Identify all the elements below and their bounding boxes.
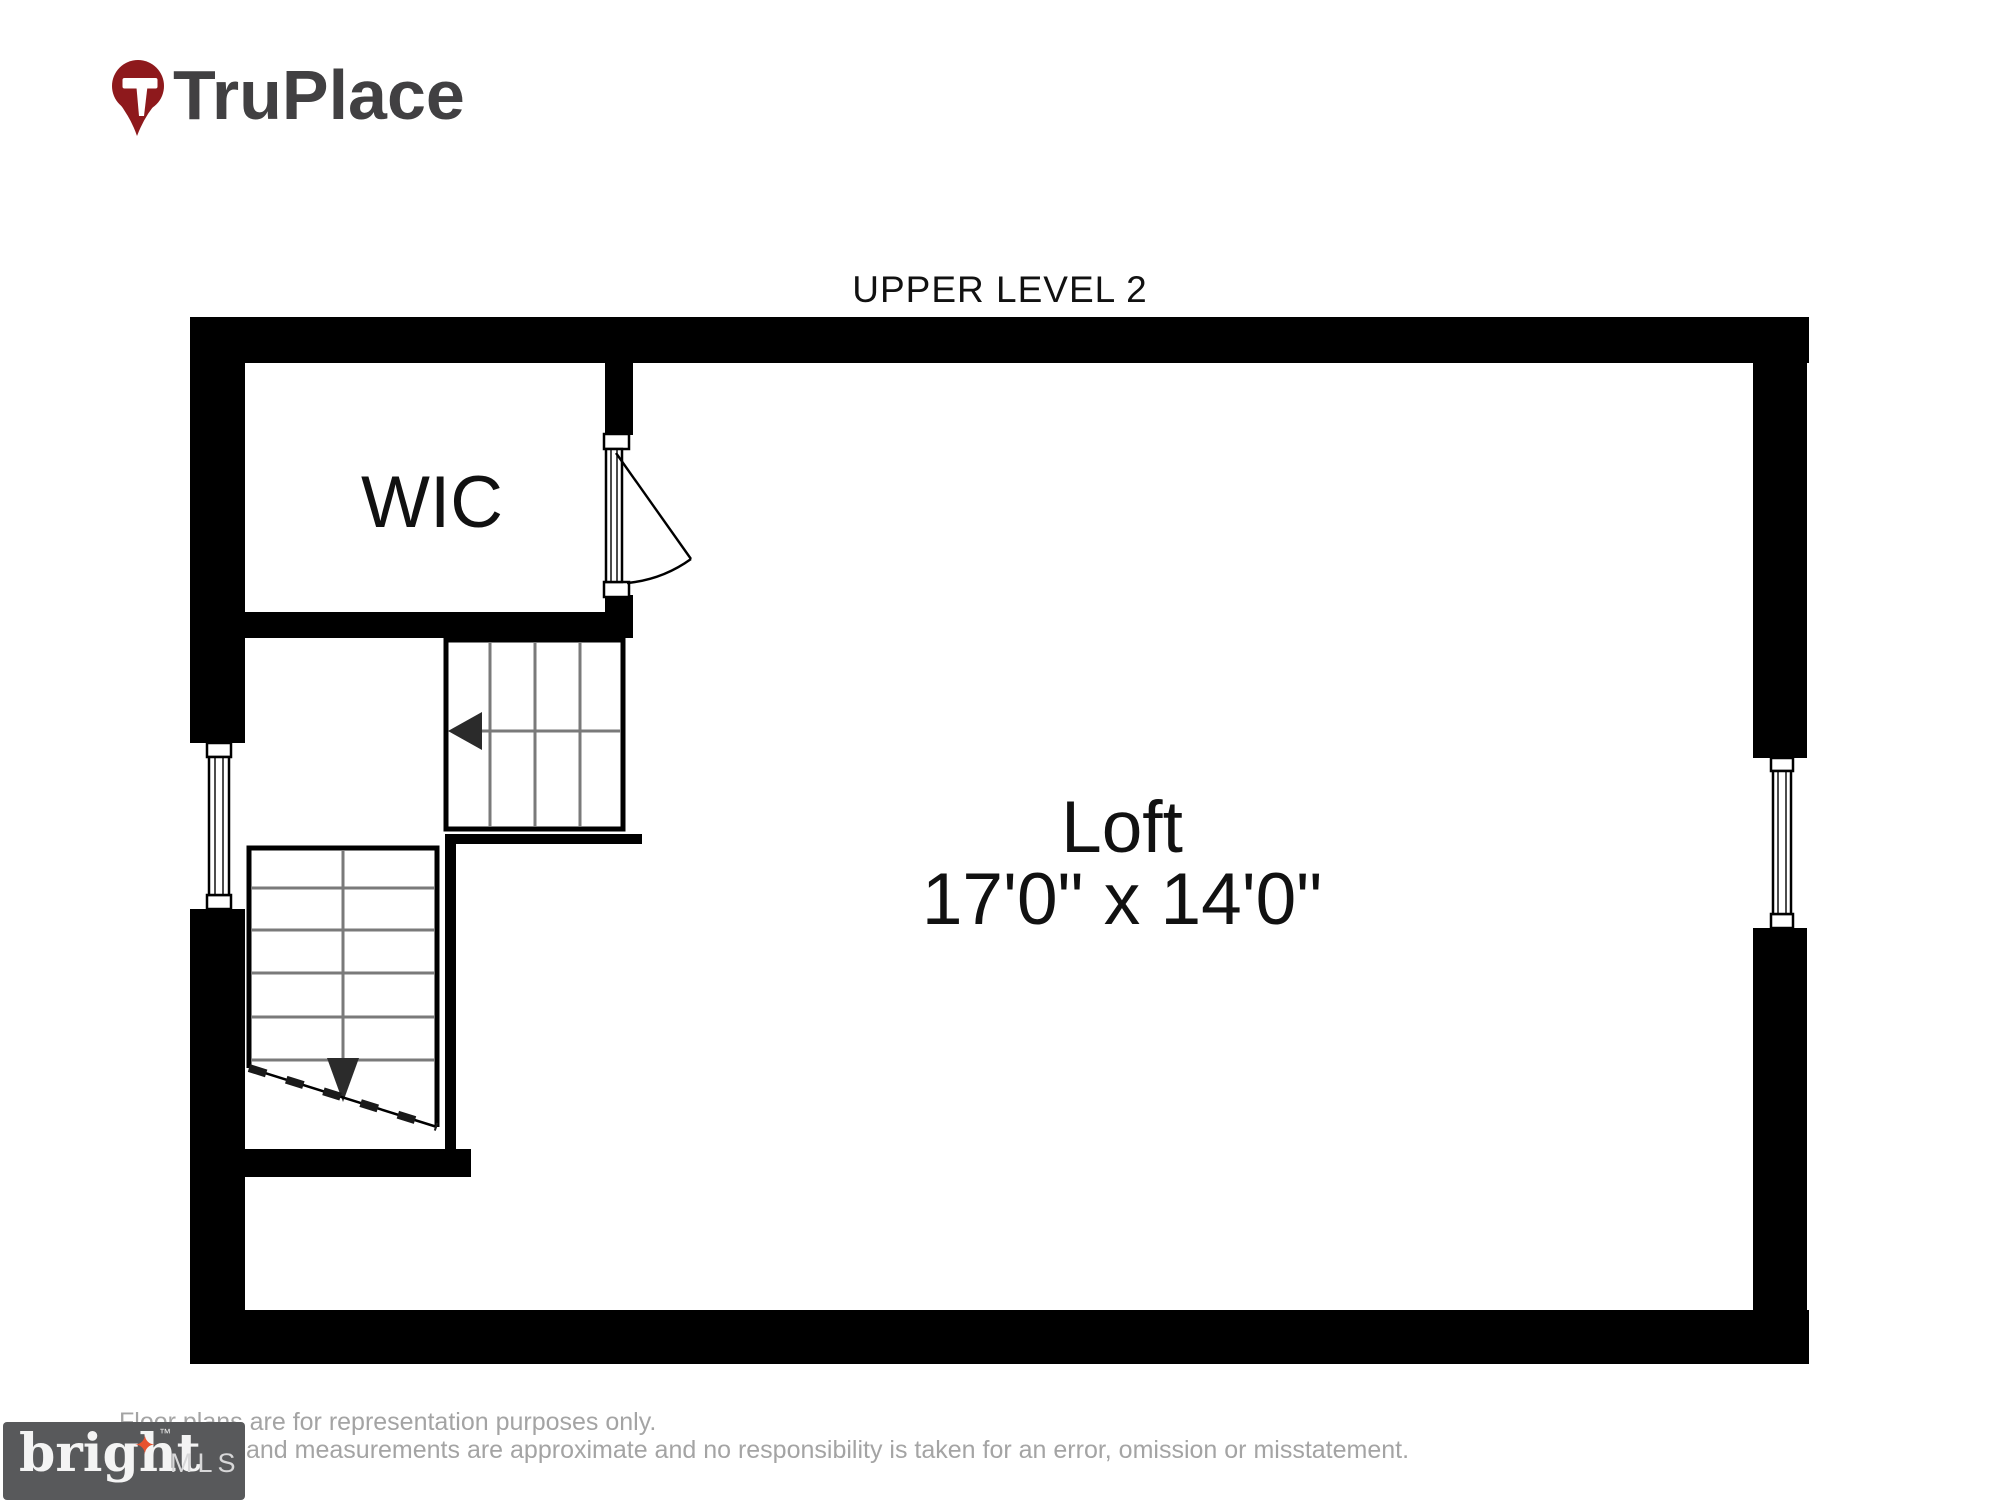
wall-stair-landing-edge xyxy=(445,834,642,844)
wall-top xyxy=(190,317,1809,363)
wall-left-lower xyxy=(190,909,245,1364)
upper-stairs xyxy=(446,640,623,829)
bright-mls-suffix: MLS xyxy=(170,1450,241,1477)
lower-stairs xyxy=(247,848,440,1127)
wic-door-jamb-bottom xyxy=(604,582,629,597)
wic-door xyxy=(604,434,691,597)
room-dimensions-loft: 17'0" x 14'0" xyxy=(872,858,1372,941)
left-window xyxy=(207,743,231,909)
left-window-body xyxy=(209,757,229,895)
left-window-jamb-top xyxy=(207,743,231,757)
bright-mls-logo: bright ✦ ™ MLS xyxy=(3,1422,245,1500)
left-window-jamb-bottom xyxy=(207,895,231,909)
wic-door-swing-line xyxy=(616,453,691,559)
bright-mls-star-icon: ✦ xyxy=(134,1432,156,1458)
wall-wic-bottom xyxy=(243,612,633,638)
wic-door-leaf xyxy=(606,449,622,582)
right-window-body xyxy=(1773,771,1791,914)
wall-left-upper xyxy=(190,317,245,743)
floor-plan-page: TruPlace xyxy=(0,0,2000,1500)
trademark-symbol: ™ xyxy=(159,1427,171,1439)
wall-right-upper xyxy=(1753,317,1807,758)
floor-plan-drawing xyxy=(0,0,2000,1500)
wic-door-jamb-top xyxy=(604,434,629,449)
wall-stair-stub xyxy=(445,840,456,1149)
right-window xyxy=(1771,758,1793,928)
wall-wic-right-upper xyxy=(605,360,633,435)
right-window-jamb-bottom xyxy=(1771,914,1793,928)
wall-bottom xyxy=(190,1310,1809,1364)
wall-stair-bottom xyxy=(243,1149,471,1177)
right-window-jamb-top xyxy=(1771,758,1793,771)
plan-title: UPPER LEVEL 2 xyxy=(0,269,2000,311)
disclaimer-line-2: and measurements are approximate and no … xyxy=(246,1436,1409,1465)
wall-right-lower xyxy=(1753,928,1807,1364)
room-label-loft: Loft xyxy=(922,786,1322,869)
wic-door-swing-arc xyxy=(627,559,691,583)
room-label-wic: WIC xyxy=(282,461,582,544)
